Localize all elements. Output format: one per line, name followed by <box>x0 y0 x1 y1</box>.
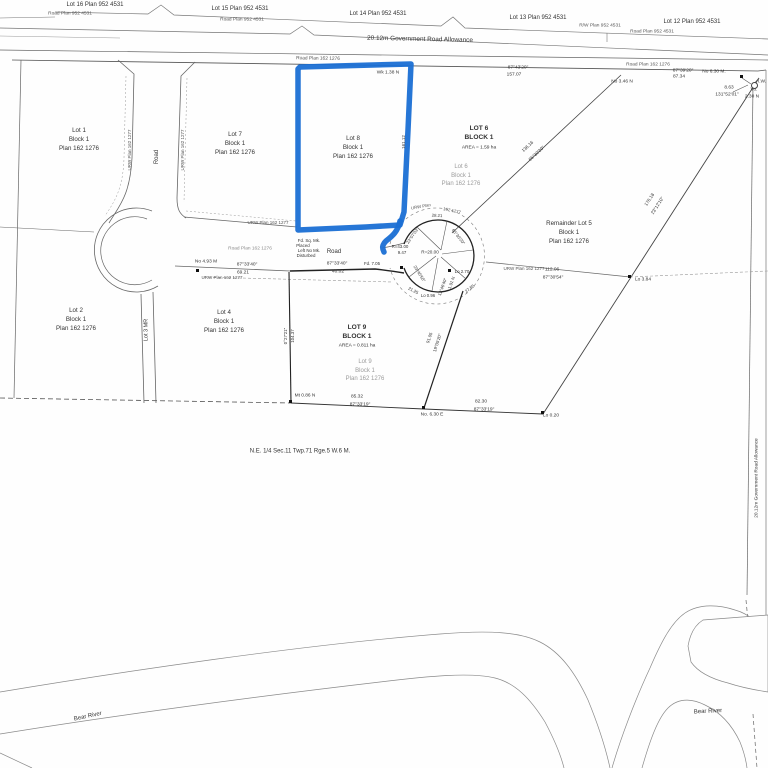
survey-note: Mt 0.86 N <box>295 395 316 400</box>
bearing: 87°33'40" <box>327 263 348 268</box>
monument-square-marker <box>400 266 403 269</box>
parcel-label-line: Block 1 <box>215 140 255 149</box>
parcel-label-line: BLOCK 1 <box>343 332 372 341</box>
road-allowance-west-line <box>747 85 753 595</box>
road-plan-label: Road Plan 162 1276 <box>626 64 670 69</box>
road-south-edge-bold <box>290 269 404 273</box>
road-allowance-south-line <box>0 50 768 60</box>
monument-square-marker <box>740 75 743 78</box>
parcel-label-line: Plan 162 1276 <box>546 237 592 246</box>
survey-note: Lo 0.20 <box>543 415 559 420</box>
parcel-label-lot-6-faded: Lot 6Block 1Plan 162 1276 <box>442 163 481 189</box>
road-allowance-label: 20.12m Government Road Allowance <box>756 438 761 517</box>
parcel-label-line: Block 1 <box>346 367 385 376</box>
parcel-label-line: Block 1 <box>333 144 373 153</box>
urw-label: URW Plan 162 1277 <box>202 276 243 281</box>
bearing: 87°30'54" <box>543 277 564 282</box>
urw-label: URW Plan 162 1277 <box>181 130 186 171</box>
monument-square-marker <box>448 269 451 272</box>
parcel-label-line: Plan 162 1276 <box>442 180 481 189</box>
bearing: 0°27'21" <box>284 328 288 344</box>
survey-note: 2.30 N <box>745 96 759 101</box>
parcel-label-line: Lot 6 <box>442 163 481 172</box>
corner-ties <box>733 78 751 92</box>
road-plan-label: Road Plan 952 4531 <box>220 19 264 24</box>
distance: 40.02 <box>332 271 344 276</box>
lot9-east-edge <box>424 291 463 408</box>
road-label: Road <box>327 249 341 255</box>
survey-plan-map: Lot 16 Plan 952 4531Lot 15 Plan 952 4531… <box>0 0 768 768</box>
top-strip-line <box>0 17 55 18</box>
parcel-label-lot-8-highlighted: Lot 8Block 1Plan 162 1276 <box>333 135 373 161</box>
bearing: 87°33'40" <box>237 264 258 269</box>
distance: 161.12 <box>402 135 407 149</box>
distance: 87.34 <box>673 76 685 81</box>
distance: 82.30 <box>475 401 487 406</box>
lot1-urw-line <box>105 76 126 216</box>
parcel-label-line: Lot 1 <box>59 127 99 136</box>
urw-label: URW Plan 162 1277 <box>504 267 545 272</box>
parcel-label-bear-river-right: Bear River <box>694 707 723 717</box>
road-label: Road <box>154 150 160 164</box>
parcel-label-line: Lot 7 <box>215 131 255 140</box>
survey-note: No 6.30 M. <box>702 71 725 76</box>
monument-square-marker <box>628 275 631 278</box>
parcel-label-line: Plan 162 1276 <box>204 326 244 335</box>
bearing: 87°33'19" <box>474 409 495 414</box>
parcel-label-line: LOT 6 <box>465 124 494 133</box>
plan-linework <box>0 0 768 768</box>
urw-east-dashed <box>630 271 768 277</box>
parcel-label-line: BLOCK 1 <box>465 133 494 142</box>
top-lot-label: Lot 12 Plan 952 4531 <box>663 19 720 25</box>
survey-note: No 3.46 N <box>611 81 633 86</box>
parcel-label-line: Lot 8 <box>333 135 373 144</box>
parcel-label-line: Lot 2 <box>56 307 96 316</box>
top-lot-label: Lot 14 Plan 952 4531 <box>349 11 406 17</box>
parcel-label-quarter-section-label: N.E. 1/4 Sec.11 Twp.71 Rge.5 W.6 M. <box>250 448 351 457</box>
monument-square-marker <box>541 411 544 414</box>
parcel-label-line: Lot 9 <box>346 358 385 367</box>
bearing: 87°33'19" <box>350 404 371 409</box>
lot1-lot2-divider <box>0 227 94 232</box>
south-boundary-line <box>291 403 543 414</box>
parcel-label-line: Lot 4 <box>204 309 244 318</box>
survey-note: No. 6.30 E <box>421 414 444 419</box>
road-plan-label: Road Plan 162 1276 <box>228 248 272 253</box>
radius-label: R=43.00 <box>392 245 409 249</box>
parcel-label-line: Plan 162 1276 <box>346 375 385 384</box>
parcel-label-line: Block 1 <box>546 229 592 238</box>
radius-label: R=20.00 <box>421 251 439 256</box>
bearing: 131°52'01" <box>715 94 738 99</box>
west-culdesac-outer-arc <box>94 208 158 292</box>
survey-note: Lo 0.96 <box>421 294 435 298</box>
parcel-label-line: Plan 162 1276 <box>333 152 373 161</box>
parcel-label-lot-2: Lot 2Block 1Plan 162 1276 <box>56 307 96 333</box>
west-boundary-line <box>14 60 21 398</box>
parcel-label-line: Plan 162 1276 <box>56 324 96 333</box>
parcel-label-line: LOT 9 <box>343 323 372 332</box>
area-label: AREA = 0.811 ha <box>339 345 376 350</box>
mr-lot-label: Lot 3 MR <box>144 319 150 341</box>
top-lot-label: Lot 16 Plan 952 4531 <box>66 2 123 8</box>
river-bank <box>0 632 610 768</box>
parcel-label-lot-9-faded: Lot 9Block 1Plan 162 1276 <box>346 358 385 384</box>
survey-note: Lo 2.70 <box>455 270 470 274</box>
parcel-label-line: N.E. 1/4 Sec.11 Twp.71 Rge.5 W.6 M. <box>250 448 351 457</box>
top-lot-label: Lot 15 Plan 952 4531 <box>211 6 268 12</box>
survey-note: Wk 1.38 N <box>377 72 399 77</box>
parcel-label-line: Block 1 <box>56 316 96 325</box>
urw-label: URW Plan 162 1277 <box>248 221 289 226</box>
monument-circle-marker <box>751 82 758 89</box>
distance: 9.47 <box>398 251 407 255</box>
survey-note: Fd. 7.05 <box>364 262 380 266</box>
distance: 112.06 <box>545 269 559 274</box>
south-boundary-dashed <box>0 398 291 403</box>
parcel-label-line: Bear River <box>694 707 723 717</box>
road-plan-label: Road Plan 952 4531 <box>630 31 674 36</box>
distance: 85.32 <box>351 396 363 401</box>
monument-square-marker <box>422 406 425 409</box>
west-culdesac-inner-arc <box>101 217 152 285</box>
road-plan-label: Road Plan 952 4531 <box>48 13 92 18</box>
parcel-label-lot-9-bold: LOT 9BLOCK 1 <box>343 323 372 341</box>
urw-label: URW Plan 162 1277 <box>128 130 133 171</box>
survey-note: Disturbed <box>297 254 316 258</box>
road-plan-label: R/W Plan 952 4531 <box>579 25 621 30</box>
parcel-label-line: Plan 162 1276 <box>215 148 255 157</box>
distance: 104.37 <box>291 329 295 342</box>
parcel-label-lot-6-bold: LOT 6BLOCK 1 <box>465 124 494 142</box>
monument-square-marker <box>196 269 199 272</box>
parcel-label-line: Block 1 <box>59 136 99 145</box>
parcel-label-lot-4: Lot 4Block 1Plan 162 1276 <box>204 309 244 335</box>
survey-note: Vo. <box>751 89 758 94</box>
distance: 28.21 <box>432 214 443 219</box>
parcel-label-lot-1: Lot 1Block 1Plan 162 1276 <box>59 127 99 153</box>
road-south-edge <box>175 266 290 271</box>
parcel-label-lot-7: Lot 7Block 1Plan 162 1276 <box>215 131 255 157</box>
river-parcel-outline <box>688 615 768 692</box>
lot3-mr-strip <box>141 292 156 403</box>
monument-square-marker <box>289 400 292 403</box>
top-lot-label: Lot 13 Plan 952 4531 <box>509 15 566 21</box>
area-label: AREA = 1.59 ha <box>462 147 496 152</box>
road-plan-label: Road Plan 162 1276 <box>296 57 340 63</box>
bearing: 87°43'20" <box>508 67 529 72</box>
parcel-label-line: Block 1 <box>204 318 244 327</box>
parcel-label-line: Plan 162 1276 <box>59 144 99 153</box>
survey-note: Lo 3.84 <box>635 279 651 284</box>
distance: 8.63 <box>724 87 733 92</box>
parcel-label-remainder-lot-5: Remainder Lot 5Block 1Plan 162 1276 <box>546 220 592 246</box>
distance: 157.07 <box>507 74 522 79</box>
parcel-label-line: Remainder Lot 5 <box>546 220 592 229</box>
survey-note: No 4.93 M <box>195 261 217 266</box>
top-strip-line <box>0 36 120 38</box>
survey-note: I.W. <box>758 81 766 86</box>
river-bank <box>0 753 32 768</box>
parcel-label-line: Block 1 <box>442 172 481 181</box>
